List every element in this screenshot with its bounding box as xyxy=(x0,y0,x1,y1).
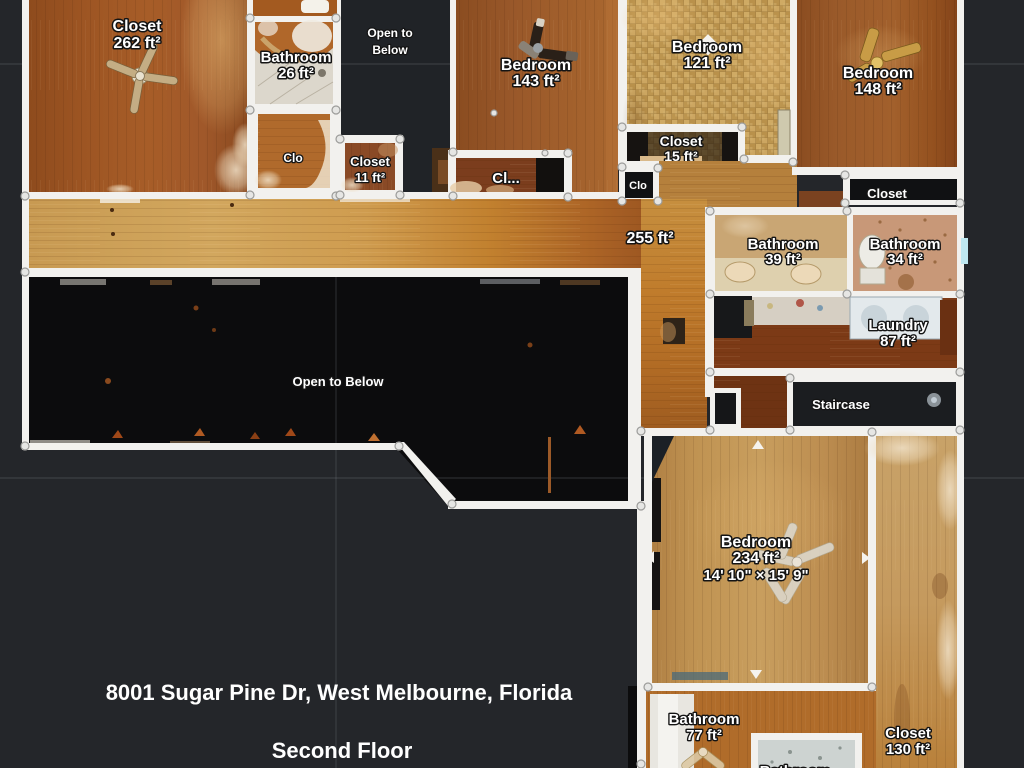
svg-text:Closet: Closet xyxy=(350,154,390,169)
svg-text:Open to: Open to xyxy=(367,26,412,40)
svg-text:Clo: Clo xyxy=(629,180,647,192)
svg-text:14' 10" × 15' 9": 14' 10" × 15' 9" xyxy=(703,567,808,584)
svg-text:Bathroom: Bathroom xyxy=(669,711,740,728)
svg-text:Bedroom: Bedroom xyxy=(501,57,571,74)
svg-text:Closet: Closet xyxy=(660,133,703,149)
svg-text:Laundry: Laundry xyxy=(868,317,928,334)
svg-text:Bedroom: Bedroom xyxy=(843,65,913,82)
svg-text:Bedroom: Bedroom xyxy=(721,534,791,551)
svg-text:Bathroom: Bathroom xyxy=(261,49,332,66)
svg-text:77 ft²: 77 ft² xyxy=(686,727,722,744)
svg-text:130 ft²: 130 ft² xyxy=(886,741,930,758)
svg-text:Cl...: Cl... xyxy=(492,170,520,187)
svg-text:Below: Below xyxy=(372,43,408,57)
svg-text:26 ft²: 26 ft² xyxy=(278,65,314,82)
svg-text:121 ft²: 121 ft² xyxy=(683,55,730,72)
svg-text:11 ft²: 11 ft² xyxy=(355,170,386,185)
svg-text:Open to Below: Open to Below xyxy=(293,374,385,389)
svg-text:143 ft²: 143 ft² xyxy=(512,73,559,90)
svg-text:Staircase: Staircase xyxy=(812,397,870,412)
svg-text:8001 Sugar Pine Dr, West Melbo: 8001 Sugar Pine Dr, West Melbourne, Flor… xyxy=(106,680,573,705)
svg-text:255 ft²: 255 ft² xyxy=(626,230,673,247)
svg-text:Clo: Clo xyxy=(283,151,302,165)
svg-text:262 ft²: 262 ft² xyxy=(113,35,160,52)
svg-text:39 ft²: 39 ft² xyxy=(765,251,801,268)
svg-text:Closet: Closet xyxy=(867,186,907,201)
svg-text:34 ft²: 34 ft² xyxy=(887,251,923,268)
svg-text:234 ft²: 234 ft² xyxy=(732,550,779,567)
svg-text:Bedroom: Bedroom xyxy=(672,39,742,56)
svg-text:148 ft²: 148 ft² xyxy=(854,81,901,98)
svg-text:Closet: Closet xyxy=(113,18,163,35)
svg-text:87 ft²: 87 ft² xyxy=(880,333,916,350)
svg-text:Second Floor: Second Floor xyxy=(272,738,413,763)
svg-text:Closet: Closet xyxy=(885,725,931,742)
svg-text:Bathroom: Bathroom xyxy=(760,763,831,768)
